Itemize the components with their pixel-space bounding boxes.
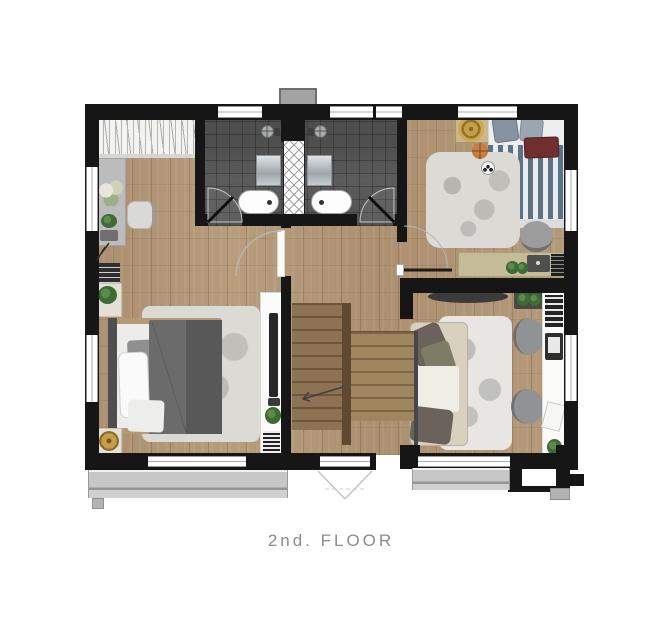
- window-top-1: [218, 106, 262, 118]
- master-duvet-dark: [186, 320, 222, 434]
- window-top-3: [376, 106, 402, 118]
- wall-stair-west-stub: [281, 214, 291, 228]
- faucet-right: [308, 128, 314, 136]
- stair-flight-lower: [351, 331, 414, 421]
- kids-rug: [426, 152, 520, 248]
- wall-bath-south-c: [393, 214, 407, 226]
- wall-family-north-stub: [400, 293, 413, 319]
- kids-desk-plant-2: [517, 262, 528, 274]
- console-plant: [265, 407, 281, 424]
- wall-corner-br-1: [508, 462, 522, 492]
- bathroom-tile-floor: [203, 112, 407, 226]
- window-master-south-2: [200, 456, 246, 467]
- desk-chair: [127, 201, 155, 229]
- bedside-lamp: [99, 431, 119, 451]
- toilet-left-drain: [267, 200, 272, 205]
- window-family-south-1: [418, 456, 466, 467]
- master-headboard: [108, 318, 117, 434]
- striped-mat: [263, 431, 280, 455]
- family-chair-1: [513, 318, 544, 355]
- bay-window-symbol: [318, 471, 372, 499]
- wall-bath-west: [195, 104, 205, 226]
- kids-door-jamb: [396, 264, 404, 276]
- window-master-south-1: [148, 456, 200, 467]
- soccer-ball: [481, 161, 495, 175]
- floor-plan-canvas: 2nd. FLOOR: [0, 0, 662, 640]
- vanity-sink-right: [307, 155, 332, 186]
- window-family-south-2: [466, 456, 510, 467]
- toilet-left: [238, 190, 279, 214]
- stair-stringer: [342, 303, 351, 445]
- family-chair-2: [511, 389, 544, 424]
- basin-left: [261, 125, 274, 138]
- master-sheet-foot: [127, 399, 164, 432]
- desk-plant: [101, 214, 117, 228]
- maroon-blanket: [524, 136, 560, 158]
- sofa-seat: [416, 366, 459, 412]
- toilet-right: [311, 190, 352, 214]
- master-door-leaf: [277, 230, 285, 277]
- wall-corner-br-bar: [566, 474, 584, 486]
- window-hall-south: [320, 456, 370, 467]
- monitor-screen: [548, 337, 560, 353]
- nightstand-plant: [98, 286, 117, 304]
- faucet-left: [274, 128, 280, 136]
- tv-panel: [269, 313, 278, 397]
- shelf-stack: [545, 295, 563, 327]
- window-left-2: [86, 335, 98, 402]
- window-top-2: [330, 106, 373, 118]
- window-right-1: [565, 170, 577, 231]
- stair-flight-upper: [292, 303, 342, 430]
- family-plant-2: [529, 293, 541, 306]
- toilet-right-drain: [319, 200, 324, 205]
- window-top-4: [458, 106, 517, 118]
- wall-family-north: [400, 278, 578, 293]
- wall-bath-south-b: [242, 214, 357, 226]
- desk-tray: [100, 230, 118, 241]
- wall-left: [85, 104, 99, 470]
- balcony-right: [412, 468, 510, 490]
- monitor: [545, 333, 563, 360]
- basin-right: [314, 125, 327, 138]
- flower-vase: [99, 180, 123, 206]
- shoes: [268, 398, 280, 406]
- laptop: [527, 255, 550, 272]
- laptop-logo: [536, 261, 540, 265]
- alcove: [522, 470, 556, 486]
- kids-chair: [520, 221, 553, 252]
- wall-family-south-stub: [400, 445, 420, 455]
- basketball: [472, 143, 488, 159]
- window-left-1: [86, 167, 98, 231]
- vanity-sink-left: [256, 155, 281, 186]
- master-closet: [97, 114, 198, 158]
- floor-caption: 2nd. FLOOR: [0, 531, 662, 551]
- balcony-right-post: [550, 488, 570, 500]
- balcony-left-post: [92, 498, 104, 509]
- stair-banister: [414, 331, 418, 449]
- balcony-left: [88, 470, 288, 498]
- desk-books: [551, 254, 564, 276]
- wall-bath-south-a: [195, 214, 208, 226]
- wall-stair-west: [281, 276, 291, 470]
- window-right-2: [565, 335, 577, 401]
